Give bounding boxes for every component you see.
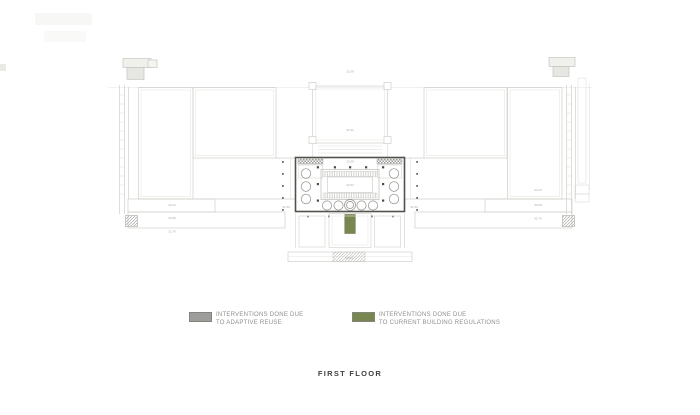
edge-artifact	[0, 64, 6, 71]
svg-text:32.08: 32.08	[346, 160, 354, 164]
left-wing	[120, 59, 296, 229]
svg-text:32.76: 32.76	[534, 217, 542, 221]
svg-text:29.84: 29.84	[345, 256, 353, 260]
svg-text:31.50: 31.50	[410, 205, 418, 209]
svg-text:33.44: 33.44	[534, 188, 542, 192]
svg-text:30.62: 30.62	[346, 183, 354, 187]
building-regulations-swatch	[352, 312, 375, 322]
faint-watermark-2	[44, 31, 86, 42]
top-block	[309, 83, 391, 158]
green-intervention-stair	[345, 215, 356, 234]
svg-text:32.76: 32.76	[168, 230, 176, 234]
svg-text:33.08: 33.08	[534, 203, 542, 207]
chimney-right	[549, 58, 575, 77]
page-title: FIRST FLOOR	[0, 369, 700, 378]
floor-plan-sheet: 32.0831.9232.0830.6233.4433.0832.7633.44…	[0, 0, 700, 410]
svg-text:33.44: 33.44	[168, 203, 176, 207]
legend-adaptive-line2: TO ADAPTIVE REUSE	[216, 320, 282, 326]
chimney-left	[123, 59, 157, 80]
hatch-block-right	[563, 216, 575, 227]
svg-text:33.08: 33.08	[168, 216, 176, 220]
legend-adaptive-line1: INTERVENTIONS DONE DUE	[216, 312, 303, 318]
legend-item-building-regulations: INTERVENTIONS DONE DUE TO CURRENT BUILDI…	[352, 311, 500, 327]
legend-regulations-line2: TO CURRENT BUILDING REGULATIONS	[379, 320, 500, 326]
adaptive-reuse-swatch	[189, 312, 212, 322]
legend-regulations-line1: INTERVENTIONS DONE DUE	[379, 312, 466, 318]
svg-text:32.08: 32.08	[346, 70, 354, 74]
hatch-block-left	[126, 216, 138, 227]
legend-item-adaptive-reuse: INTERVENTIONS DONE DUE TO ADAPTIVE REUSE	[189, 311, 303, 327]
svg-text:31.92: 31.92	[346, 128, 354, 132]
gray-intervention-strip-right	[377, 159, 402, 164]
floor-plan-drawing: 32.0831.9232.0830.6233.4433.0832.7633.44…	[0, 0, 700, 410]
gray-intervention-strip-left	[298, 159, 323, 164]
faint-watermark-1	[35, 13, 92, 25]
right-wing	[405, 58, 590, 229]
svg-text:31.50: 31.50	[282, 205, 290, 209]
